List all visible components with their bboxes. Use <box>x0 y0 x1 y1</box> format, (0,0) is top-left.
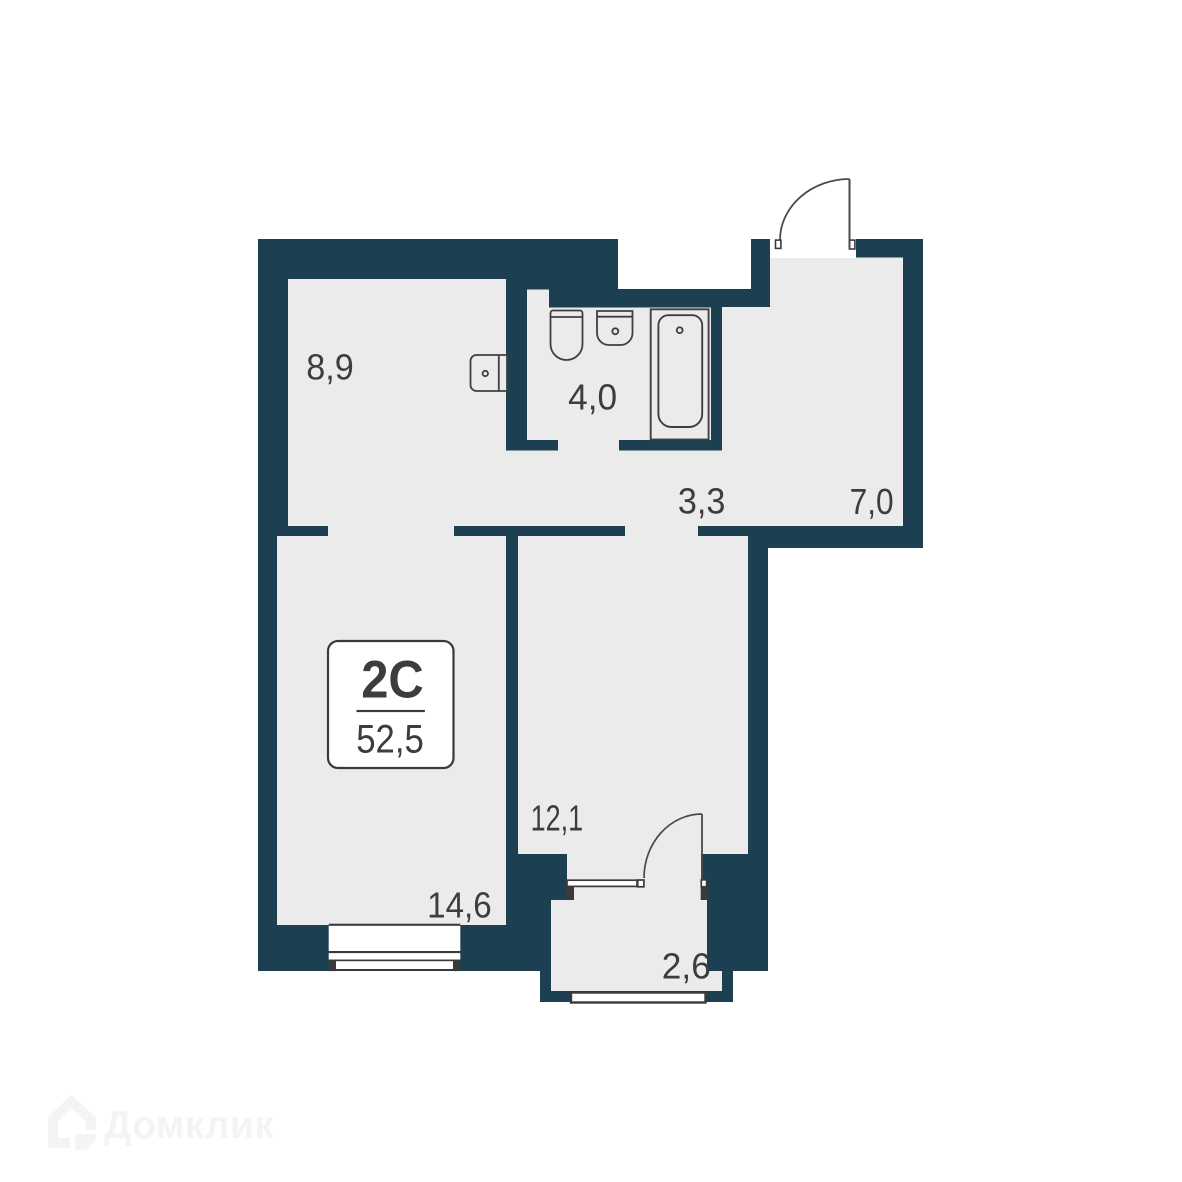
svg-text:7,0: 7,0 <box>850 481 894 522</box>
svg-text:4,0: 4,0 <box>568 376 617 417</box>
svg-text:8,9: 8,9 <box>306 347 354 388</box>
svg-text:3,3: 3,3 <box>678 481 726 522</box>
svg-text:12,1: 12,1 <box>531 797 584 838</box>
svg-text:14,6: 14,6 <box>427 885 492 926</box>
svg-text:2С: 2С <box>361 651 424 710</box>
svg-text:Домклик: Домклик <box>104 1104 274 1147</box>
svg-text:52,5: 52,5 <box>356 718 424 762</box>
svg-text:2,6: 2,6 <box>662 945 711 986</box>
